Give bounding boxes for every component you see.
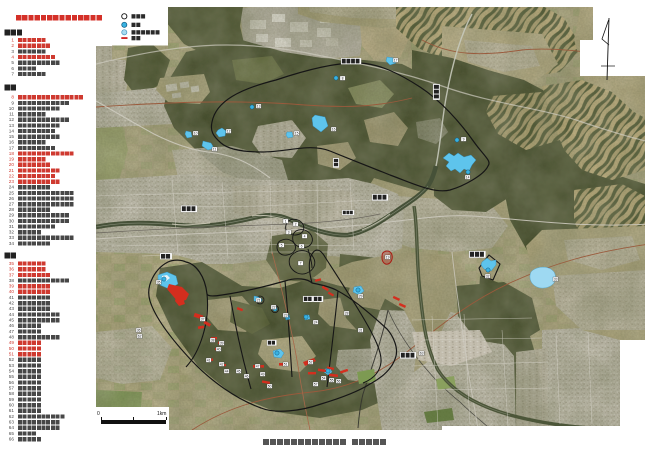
svg-text:46: 46 xyxy=(245,375,249,379)
svg-text:55: 55 xyxy=(330,379,334,383)
svg-text:63: 63 xyxy=(420,352,424,356)
svg-text:37: 37 xyxy=(201,318,205,322)
svg-text:14: 14 xyxy=(466,176,470,180)
svg-text:54: 54 xyxy=(322,377,326,381)
svg-text:7: 7 xyxy=(300,262,302,266)
svg-text:45: 45 xyxy=(237,370,241,374)
svg-text:51: 51 xyxy=(284,363,288,367)
svg-text:47: 47 xyxy=(256,365,260,369)
svg-text:52: 52 xyxy=(309,361,313,365)
svg-text:1: 1 xyxy=(285,220,287,224)
svg-text:50: 50 xyxy=(268,385,272,389)
svg-text:9: 9 xyxy=(463,138,465,142)
svg-text:3: 3 xyxy=(288,231,290,235)
svg-text:11: 11 xyxy=(213,148,217,152)
svg-text:56: 56 xyxy=(337,380,341,384)
svg-text:41: 41 xyxy=(207,359,211,363)
svg-text:15: 15 xyxy=(295,132,299,136)
svg-text:13: 13 xyxy=(257,105,261,109)
svg-text:32: 32 xyxy=(486,275,490,279)
svg-text:36: 36 xyxy=(137,329,141,333)
svg-text:10: 10 xyxy=(194,132,198,136)
svg-text:38: 38 xyxy=(211,339,215,343)
svg-text:23: 23 xyxy=(284,314,288,318)
svg-text:4: 4 xyxy=(304,235,306,239)
svg-text:19: 19 xyxy=(386,256,390,260)
svg-text:33: 33 xyxy=(554,278,558,282)
svg-text:40: 40 xyxy=(217,348,221,352)
svg-text:28: 28 xyxy=(345,312,349,316)
svg-text:42: 42 xyxy=(220,363,224,367)
svg-text:44: 44 xyxy=(225,370,229,374)
svg-text:31: 31 xyxy=(359,329,363,333)
svg-text:2: 2 xyxy=(295,223,297,227)
svg-text:57: 57 xyxy=(314,383,318,387)
svg-text:24: 24 xyxy=(314,321,318,325)
svg-text:8: 8 xyxy=(342,77,344,81)
svg-text:35: 35 xyxy=(157,281,161,285)
svg-text:21: 21 xyxy=(257,299,261,303)
svg-text:5: 5 xyxy=(281,244,283,248)
svg-text:22: 22 xyxy=(272,306,276,310)
svg-text:39: 39 xyxy=(220,342,224,346)
svg-text:29: 29 xyxy=(359,295,363,299)
svg-text:6: 6 xyxy=(301,245,303,249)
svg-text:12: 12 xyxy=(227,130,231,134)
svg-text:17: 17 xyxy=(394,59,398,63)
svg-text:49: 49 xyxy=(261,373,265,377)
svg-text:62: 62 xyxy=(138,335,142,339)
svg-text:16: 16 xyxy=(332,128,336,132)
